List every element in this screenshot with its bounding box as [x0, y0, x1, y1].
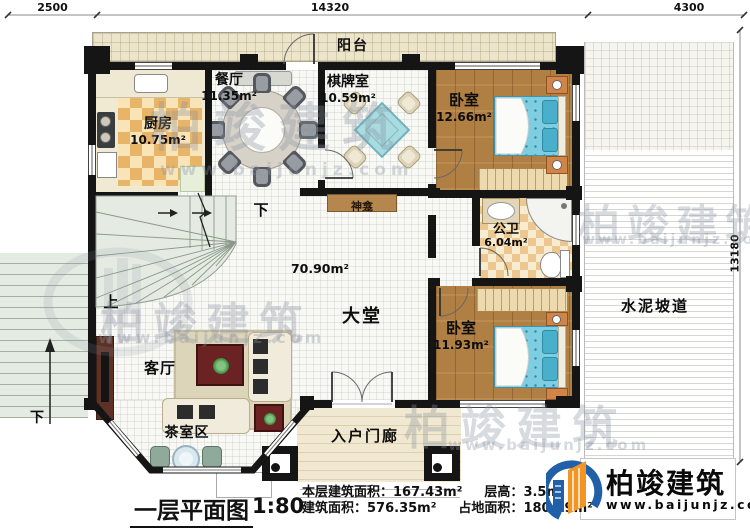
pillow [542, 330, 558, 354]
shrine-label: 神龛 [351, 200, 373, 213]
total-area-value: 576.35m² [367, 501, 436, 516]
sofa-cushion [253, 379, 268, 394]
bathroom-label: 公卫 6.04m² [478, 222, 534, 250]
dining-chair [299, 121, 319, 139]
ramp-label: 水泥坡道 [600, 298, 710, 316]
porch-column [262, 446, 298, 481]
stairs-down-label: 下 [250, 202, 272, 220]
toilet-tank [560, 250, 570, 278]
column [556, 46, 584, 74]
window [572, 215, 580, 245]
floor-area-value: 167.43m² [393, 485, 462, 500]
wall [572, 121, 580, 215]
dining-name: 餐厅 [196, 72, 262, 89]
column [240, 54, 258, 70]
kitchen-area: 10.75m² [118, 133, 198, 147]
tea-area-label: 茶室区 [152, 425, 222, 442]
lamp [552, 315, 561, 324]
stove-burner [100, 116, 111, 127]
bathroom-area: 6.04m² [478, 237, 534, 250]
sofa-cushion [253, 359, 268, 374]
wall [88, 62, 96, 145]
headboard [558, 96, 566, 156]
plan-scale: 1:80 [252, 494, 304, 518]
wall [88, 175, 96, 408]
height-label: 层高： [484, 485, 523, 500]
column [566, 276, 582, 292]
sofa-cushion [253, 339, 268, 354]
headboard [558, 326, 566, 388]
hall-area-label: 70.90m² [288, 262, 352, 277]
sofa [248, 332, 292, 402]
nightstand [546, 312, 568, 326]
bathroom-name: 公卫 [478, 222, 534, 237]
dining-chair [253, 167, 271, 187]
nightstand [546, 156, 568, 174]
dining-area: 11.35m² [196, 89, 262, 103]
bedroom-bottom-label: 卧室 11.93m² [428, 320, 494, 352]
wall [472, 278, 572, 286]
land-area-label: 占地面积： [458, 501, 523, 516]
bathroom-sink [487, 202, 515, 220]
outdoor-stairs-down-label: 下 [26, 410, 48, 427]
window [88, 145, 96, 175]
dim-top-left: 2500 [30, 1, 75, 14]
plant [264, 413, 276, 425]
column [300, 396, 314, 410]
game-room-area: 10.59m² [310, 91, 386, 105]
toilet [540, 252, 562, 278]
bedroom-top-label: 卧室 12.66m² [432, 92, 496, 124]
game-room-name: 棋牌室 [310, 74, 386, 91]
pillow [542, 128, 558, 152]
dim-top-right: 4300 [664, 1, 714, 14]
porch-column [424, 446, 460, 481]
dim-right: 13180 [729, 231, 742, 277]
plan-title: 一层平面图 [130, 491, 253, 528]
bedroom-top-area: 12.66m² [432, 110, 496, 124]
coffee-table [196, 344, 244, 386]
total-area-label: 建筑面积： [302, 501, 367, 516]
living-label: 客厅 [138, 360, 182, 378]
window [572, 85, 580, 121]
kitchen-pantry [180, 166, 205, 192]
wardrobe [476, 288, 568, 312]
dining-table-top [239, 107, 285, 153]
nightstand [546, 76, 568, 94]
tea-chair [150, 446, 170, 468]
column [556, 396, 580, 408]
tv-cabinet [96, 336, 114, 420]
shower-head [561, 203, 567, 209]
column [84, 46, 110, 74]
ramp-upper-pavement [584, 42, 734, 150]
wall [428, 215, 436, 258]
floor-plan: 神龛 [0, 0, 750, 531]
window [455, 62, 540, 70]
kitchen-cabinet [97, 152, 117, 178]
balcony-label: 阳台 [318, 38, 388, 55]
sofa-cushion [199, 405, 215, 419]
tea-chair [202, 446, 222, 468]
tea-table-top [179, 452, 193, 466]
side-table [254, 404, 284, 432]
column [566, 186, 582, 200]
pillow [542, 357, 558, 381]
plant [213, 358, 229, 374]
game-room-label: 棋牌室 10.59m² [310, 74, 386, 105]
stairs-up-label: 上 [100, 294, 122, 312]
sofa-cushion [177, 405, 193, 419]
tea-table [172, 445, 200, 473]
wall [395, 400, 460, 408]
bedroom-bottom-area: 11.93m² [428, 338, 494, 352]
dim-top-middle: 14320 [300, 1, 360, 14]
bedroom-top-name: 卧室 [432, 92, 496, 110]
bathroom-vanity [482, 198, 520, 224]
wall [428, 278, 440, 286]
kitchen-name: 厨房 [118, 116, 198, 133]
pillow [542, 100, 558, 124]
window [135, 62, 172, 70]
company-logo-name: 柏竣建筑 [606, 462, 726, 502]
wall [172, 62, 286, 70]
outdoor-stairs [0, 253, 88, 418]
column [402, 54, 420, 70]
kitchen-sink [134, 74, 168, 93]
wall [428, 190, 572, 198]
window [572, 330, 580, 366]
column [84, 398, 96, 410]
lamp [552, 160, 562, 170]
lamp [552, 80, 562, 90]
stove-burner [100, 132, 111, 143]
company-logo-url: www.baijunjz.com [606, 497, 750, 512]
shrine: 神龛 [327, 194, 397, 212]
stove [97, 112, 115, 148]
floor-area-label: 本层建筑面积： [302, 485, 393, 500]
bedroom-bottom-name: 卧室 [428, 320, 494, 338]
window [460, 400, 545, 408]
kitchen-label: 厨房 10.75m² [118, 116, 198, 147]
company-logo-icon [546, 456, 608, 526]
wall [88, 192, 178, 200]
porch-label: 入户门廊 [318, 428, 412, 446]
mahjong-table-top [365, 113, 399, 147]
tv [101, 352, 109, 402]
hall-label: 大堂 [334, 306, 390, 327]
dining-label: 餐厅 11.35m² [196, 72, 262, 103]
